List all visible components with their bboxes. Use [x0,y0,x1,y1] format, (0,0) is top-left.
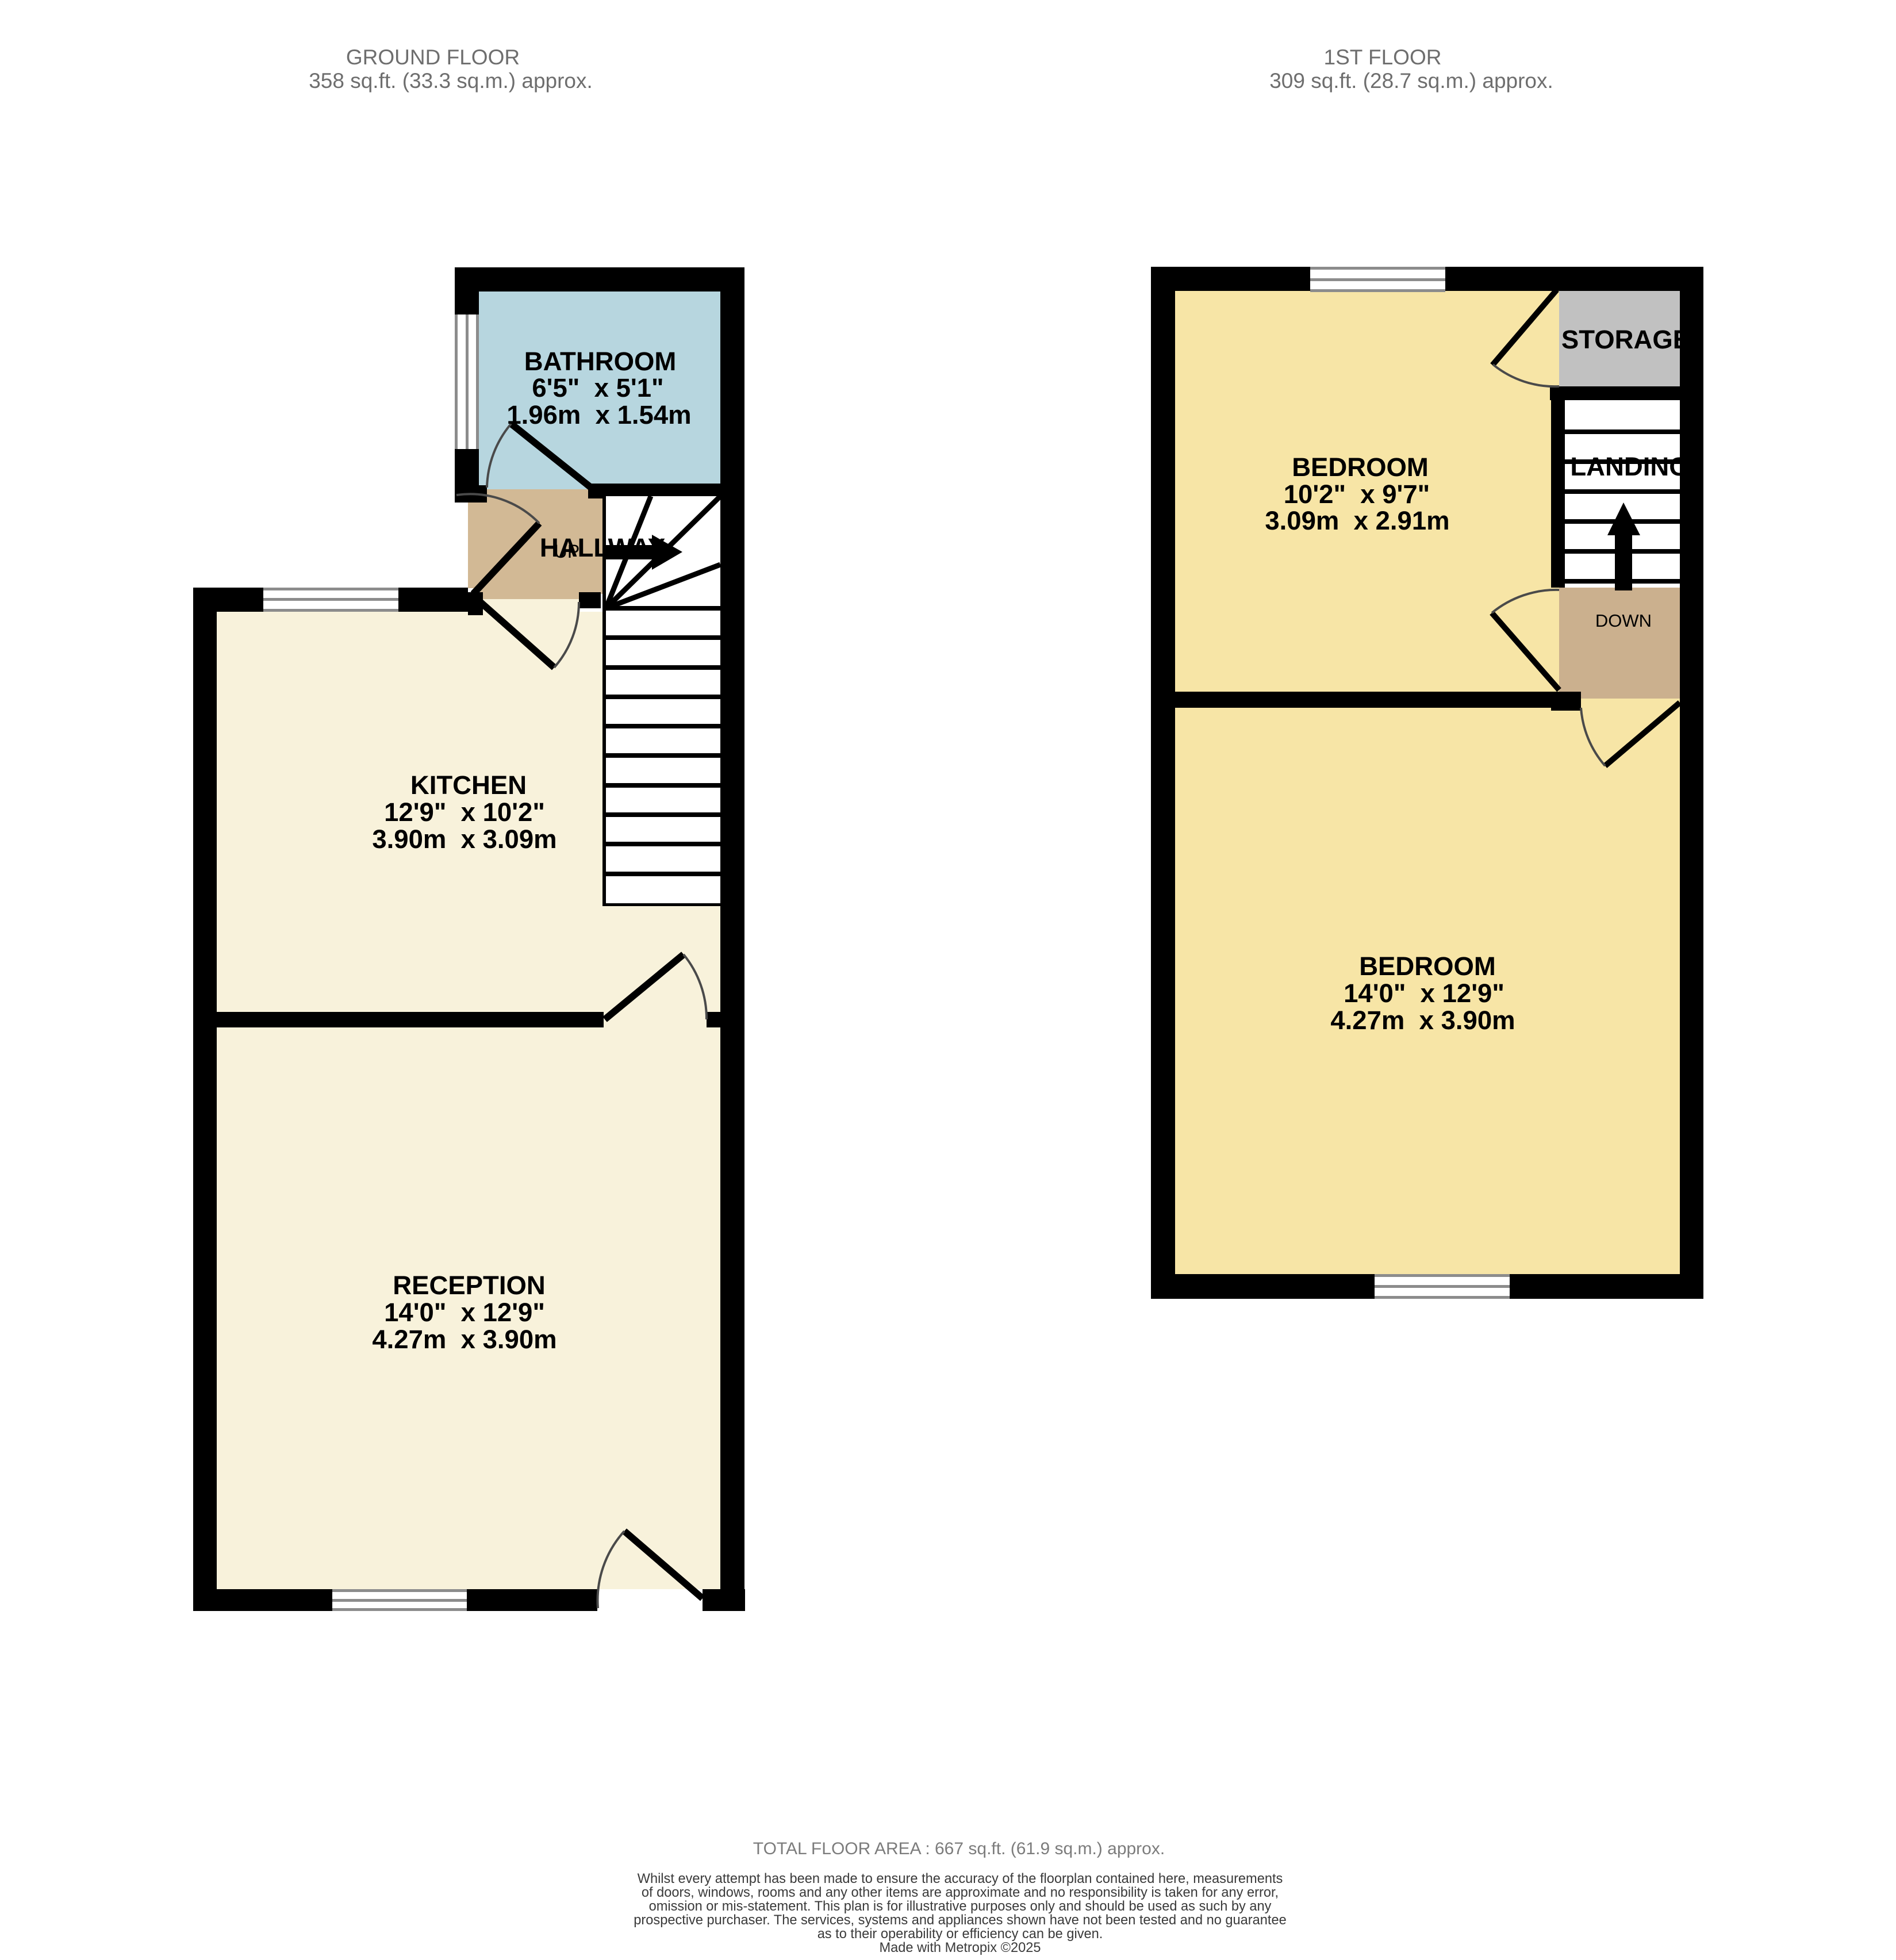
svg-text:1.96m x 1.54m: 1.96m x 1.54m [506,400,691,429]
svg-text:DOWN: DOWN [1595,611,1652,631]
svg-text:TOTAL FLOOR AREA : 667 sq.ft.: TOTAL FLOOR AREA : 667 sq.ft. (61.9 sq.m… [753,1839,1165,1858]
svg-text:6'5" x 5'1": 6'5" x 5'1" [532,373,663,402]
svg-text:omission or mis-statement. Thi: omission or mis-statement. This plan is … [649,1899,1272,1914]
svg-text:4.27m x 3.90m: 4.27m x 3.90m [372,1325,556,1354]
svg-text:of doors, windows, rooms and a: of doors, windows, rooms and any other i… [642,1885,1279,1900]
svg-text:14'0" x 12'9": 14'0" x 12'9" [1344,979,1504,1008]
svg-text:Made with Metropix ©2025: Made with Metropix ©2025 [880,1940,1041,1955]
svg-text:BEDROOM: BEDROOM [1359,952,1496,981]
svg-text:KITCHEN: KITCHEN [410,770,527,800]
svg-text:12'9" x 10'2": 12'9" x 10'2" [384,797,545,827]
svg-text:as to their operability or eff: as to their operability or efficiency ca… [817,1927,1103,1942]
svg-text:BEDROOM: BEDROOM [1292,452,1429,482]
svg-text:LANDING: LANDING [1570,452,1689,481]
svg-text:RECEPTION: RECEPTION [393,1271,545,1300]
svg-text:HALLWAY: HALLWAY [540,533,665,562]
svg-text:10'2" x 9'7": 10'2" x 9'7" [1284,480,1430,509]
svg-text:1ST FLOOR: 1ST FLOOR [1324,45,1442,69]
svg-text:STORAGE: STORAGE [1561,325,1690,354]
svg-text:14'0" x 12'9": 14'0" x 12'9" [384,1298,545,1327]
svg-text:3.09m x 2.91m: 3.09m x 2.91m [1265,506,1449,535]
svg-text:BATHROOM: BATHROOM [524,347,677,376]
svg-text:358 sq.ft. (33.3 sq.m.) approx: 358 sq.ft. (33.3 sq.m.) approx. [309,69,593,93]
svg-text:Whilst every attempt has been: Whilst every attempt has been made to en… [638,1871,1283,1886]
svg-text:GROUND FLOOR: GROUND FLOOR [346,45,520,69]
svg-text:prospective purchaser. The ser: prospective purchaser. The services, sys… [634,1913,1286,1928]
svg-text:3.90m x 3.09m: 3.90m x 3.09m [372,824,556,854]
svg-text:4.27m x 3.90m: 4.27m x 3.90m [1330,1006,1515,1035]
svg-text:309 sq.ft. (28.7 sq.m.) approx: 309 sq.ft. (28.7 sq.m.) approx. [1269,69,1553,93]
